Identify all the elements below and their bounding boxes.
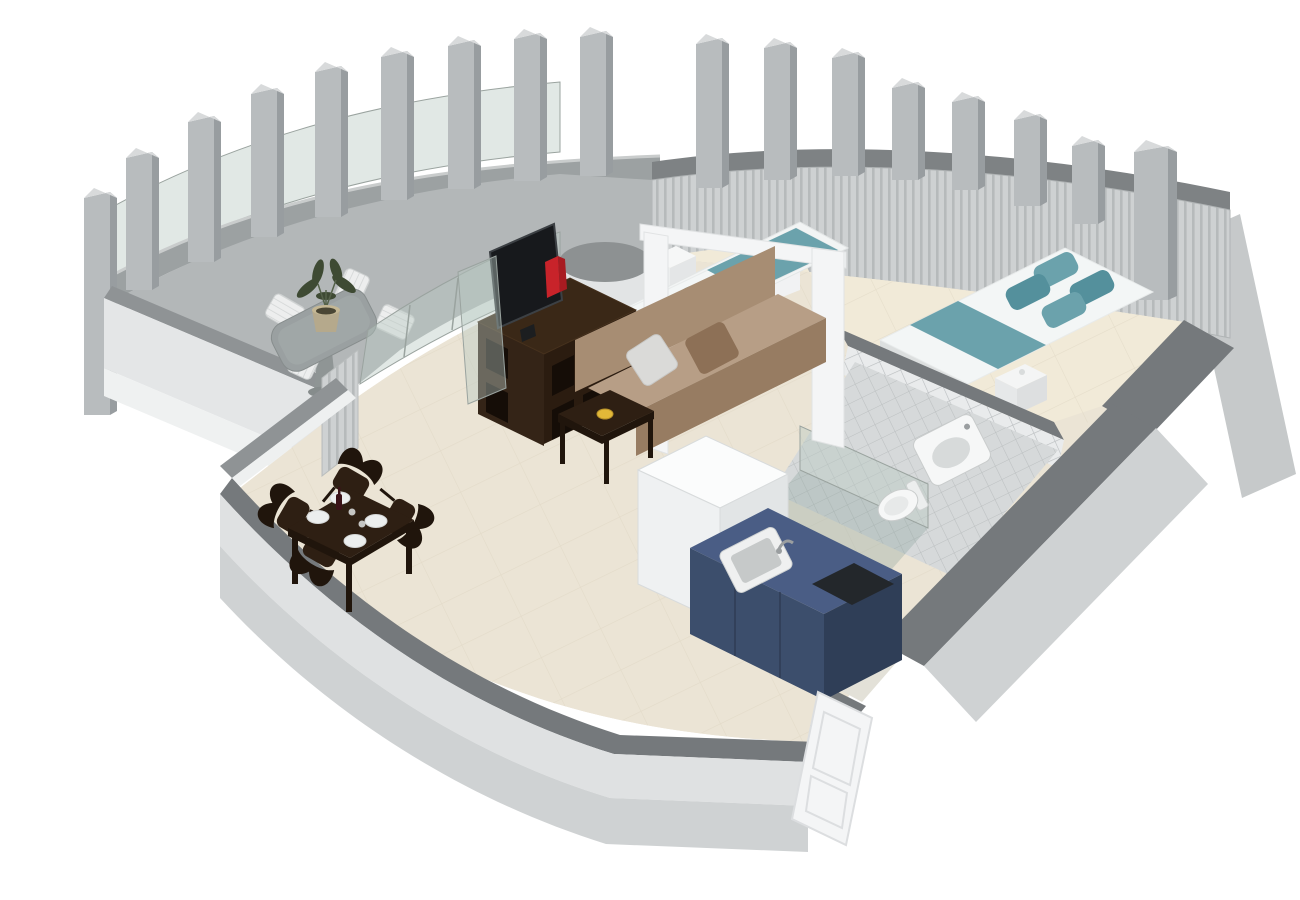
glass (349, 509, 356, 516)
pillar (188, 112, 221, 262)
floorplan-canvas (0, 0, 1300, 900)
pillar (832, 48, 865, 176)
pillar (381, 47, 414, 200)
pillar (1072, 136, 1105, 224)
pillar (952, 92, 985, 190)
wine-bottle (336, 494, 342, 510)
pillar (1014, 110, 1047, 206)
pillar (126, 148, 159, 290)
pillar (1134, 140, 1177, 300)
red-books (545, 256, 560, 298)
pillar (892, 78, 925, 180)
column-top (559, 242, 651, 282)
plate (307, 511, 329, 524)
pillar (580, 27, 613, 176)
pillar (514, 29, 547, 181)
plate (365, 515, 387, 528)
faucet-base (776, 548, 782, 554)
pillar (251, 84, 284, 237)
glass (359, 521, 366, 528)
floorplan-render (0, 0, 1300, 900)
table-leg (346, 558, 352, 612)
pillar (696, 34, 729, 188)
yellow-dish (597, 409, 613, 419)
lamp (1019, 369, 1025, 375)
table-leg (604, 438, 609, 484)
wine-bottle-neck (338, 487, 341, 495)
plate (344, 535, 366, 548)
pillar (315, 62, 348, 217)
pillar (764, 38, 797, 180)
pillar (448, 36, 481, 189)
